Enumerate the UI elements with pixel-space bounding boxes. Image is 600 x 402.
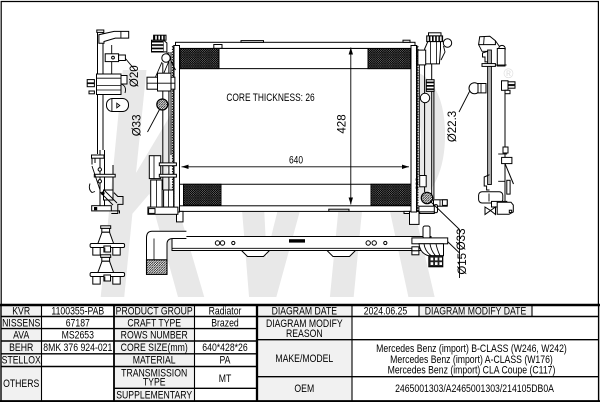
- svg-text:Ø20: Ø20: [129, 65, 141, 87]
- svg-text:67187: 67187: [66, 318, 91, 330]
- svg-text:Brazed: Brazed: [211, 318, 239, 330]
- svg-text:STELLOX: STELLOX: [2, 355, 41, 367]
- svg-text:Ø15: Ø15: [457, 253, 469, 275]
- svg-text:MS2653: MS2653: [62, 330, 95, 342]
- svg-text:640: 640: [289, 154, 303, 167]
- svg-text:SUPPLEMENTARY: SUPPLEMENTARY: [116, 390, 192, 402]
- svg-text:640*428*26: 640*428*26: [202, 342, 248, 354]
- svg-text:Radiator: Radiator: [209, 306, 242, 318]
- svg-text:CRAFT TYPE: CRAFT TYPE: [127, 318, 181, 330]
- svg-text:1100355-PAB: 1100355-PAB: [51, 306, 104, 318]
- svg-text:2465001303/A2465001303/214105D: 2465001303/A2465001303/214105DB0A: [395, 383, 554, 395]
- svg-text:CORE THICKNESS: 26: CORE THICKNESS: 26: [226, 92, 315, 105]
- svg-text:NISSENS: NISSENS: [2, 318, 40, 330]
- svg-text:428: 428: [337, 114, 349, 133]
- svg-text:MATERIAL: MATERIAL: [133, 355, 176, 367]
- svg-text:MAKE/MODEL: MAKE/MODEL: [275, 353, 333, 365]
- svg-text:8MK 376 924-021: 8MK 376 924-021: [43, 342, 112, 354]
- svg-text:REASON: REASON: [286, 328, 323, 340]
- svg-text:TYPE: TYPE: [143, 377, 166, 389]
- svg-text:KVR: KVR: [12, 306, 30, 318]
- svg-text:Mercedes Benz (import) CLA Cou: Mercedes Benz (import) CLA Coupe (C117): [388, 365, 556, 377]
- svg-text:2024.06.25: 2024.06.25: [364, 306, 408, 318]
- svg-text:Ø33: Ø33: [456, 229, 468, 251]
- svg-text:BEHR: BEHR: [9, 342, 33, 354]
- svg-text:PRODUCT GROUP: PRODUCT GROUP: [116, 306, 193, 318]
- svg-text:OTHERS: OTHERS: [3, 378, 40, 390]
- svg-text:DIAGRAM DATE: DIAGRAM DATE: [272, 306, 338, 318]
- svg-text:OEM: OEM: [294, 383, 314, 395]
- svg-text:PA: PA: [220, 355, 231, 367]
- svg-text:Ø33: Ø33: [131, 115, 143, 137]
- svg-text:DIAGRAM MODIFY DATE: DIAGRAM MODIFY DATE: [425, 306, 527, 318]
- svg-text:MT: MT: [219, 373, 232, 385]
- svg-text:AVA: AVA: [13, 330, 29, 342]
- svg-text:Ø22.3: Ø22.3: [447, 111, 459, 142]
- svg-text:ROWS NUMBER: ROWS NUMBER: [121, 330, 188, 342]
- svg-text:CORE SIZE(mm): CORE SIZE(mm): [121, 342, 188, 354]
- svg-text:®: ®: [504, 66, 514, 81]
